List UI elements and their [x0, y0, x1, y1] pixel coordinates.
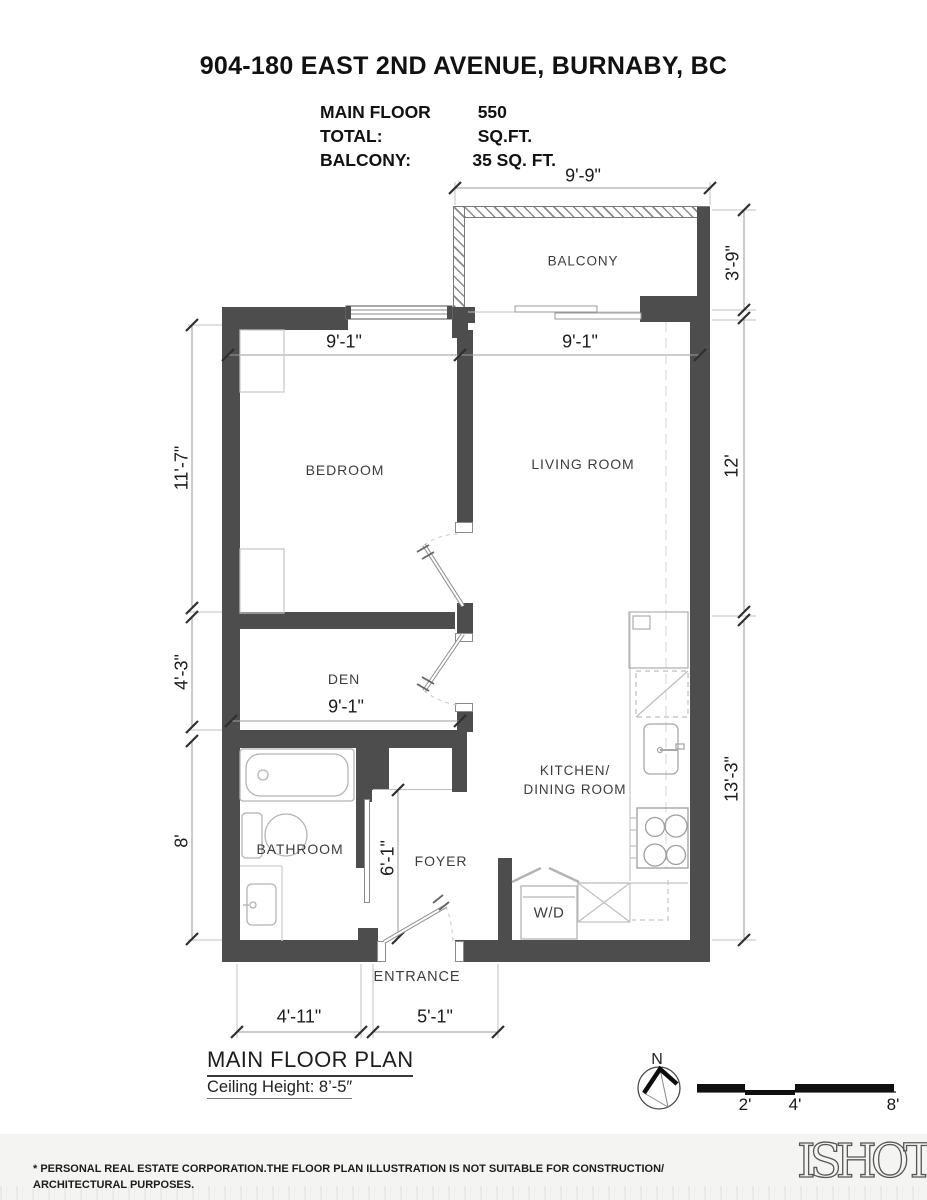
plan-linework [0, 0, 927, 1200]
dim-bathroom-depth: 8' [172, 834, 193, 847]
extension-lines [188, 182, 756, 1038]
stove [630, 808, 688, 868]
dimension-ticks [186, 182, 750, 1038]
dim-kitchen-depth: 13'-3" [722, 756, 743, 802]
fridge [629, 612, 688, 668]
room-label-kitchen: KITCHEN/ DINING ROOM [524, 761, 627, 799]
room-label-den: DEN [328, 671, 360, 687]
room-label-balcony: BALCONY [548, 254, 619, 269]
kitchen-line2: DINING ROOM [524, 780, 627, 799]
disclaimer-text: * PERSONAL REAL ESTATE CORPORATION.THE F… [33, 1144, 693, 1200]
bedroom-door [417, 534, 463, 606]
dim-living-depth: 12' [722, 454, 743, 477]
scale-tick-4: 4' [789, 1095, 802, 1115]
bathtub [240, 749, 354, 801]
north-label: N [651, 1051, 663, 1069]
room-label-entrance: ENTRANCE [374, 969, 461, 985]
upper-cabinet [636, 671, 688, 717]
ishot-logo: ISHOT [797, 1134, 927, 1189]
north-arrow-icon [638, 1067, 680, 1109]
scale-tick-2: 2' [739, 1095, 752, 1115]
dim-bedroom-depth: 11'-7" [172, 446, 193, 491]
dim-den-depth: 4'-3" [172, 654, 193, 690]
dim-balcony-width: 9'-9" [565, 166, 601, 187]
dimension-lines [192, 188, 744, 1032]
bifold-doors [512, 868, 579, 882]
kitchen-line1: KITCHEN/ [524, 761, 627, 780]
room-label-living: LIVING ROOM [531, 456, 634, 472]
room-label-bedroom: BEDROOM [306, 462, 385, 478]
room-label-bathroom: BATHROOM [256, 841, 343, 857]
scale-tick-8: 8' [887, 1095, 900, 1115]
kitchen-sink [644, 724, 684, 774]
entrance-door [384, 895, 453, 942]
disclaimer-line: * PERSONAL REAL ESTATE CORPORATION.THE F… [33, 1161, 693, 1194]
pantry-cabinet [578, 883, 630, 922]
window-symbol [346, 306, 452, 319]
dim-den-width: 9'-1" [328, 697, 364, 718]
bathroom-sink [240, 866, 282, 941]
room-label-foyer: FOYER [415, 853, 468, 869]
dim-foyer-depth: 6'-1" [378, 840, 399, 876]
bedroom-closets [240, 330, 284, 613]
dim-entrance-width: 5'-1" [417, 1007, 453, 1028]
sliding-door [468, 306, 641, 319]
dim-living-width: 9'-1" [562, 332, 598, 353]
plan-title: MAIN FLOOR PLAN [207, 1047, 413, 1077]
den-door [417, 634, 463, 705]
scale-bar [697, 1084, 896, 1095]
dim-bedroom-width: 9'-1" [326, 332, 362, 353]
room-label-wd: W/D [534, 905, 565, 922]
dim-bathroom-width: 4'-11" [277, 1007, 322, 1028]
plan-title-block: MAIN FLOOR PLAN Ceiling Height: 8’-5″ [207, 1047, 413, 1099]
dim-balcony-depth: 3'-9" [723, 245, 744, 281]
floor-plan-page: 904-180 EAST 2ND AVENUE, BURNABY, BC MAI… [0, 0, 927, 1200]
ceiling-height: Ceiling Height: 8’-5″ [207, 1078, 352, 1099]
